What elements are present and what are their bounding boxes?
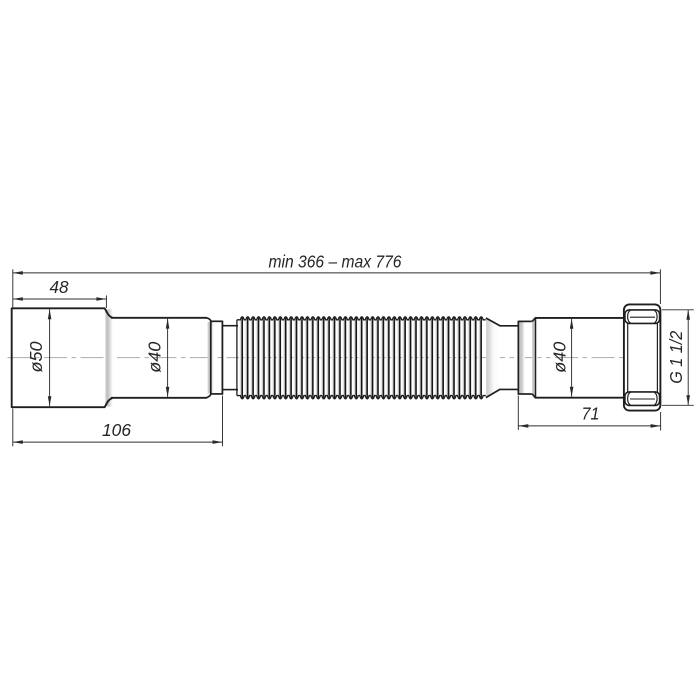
svg-text:71: 71 xyxy=(582,404,600,424)
svg-text:48: 48 xyxy=(50,277,69,297)
svg-text:106: 106 xyxy=(102,420,131,440)
svg-text:G 1 1/2: G 1 1/2 xyxy=(666,331,686,384)
svg-text:min 366 – max 776: min 366 – max 776 xyxy=(269,251,402,271)
svg-text:ø40: ø40 xyxy=(145,342,165,373)
svg-text:ø50: ø50 xyxy=(26,341,46,372)
svg-text:ø40: ø40 xyxy=(550,342,570,373)
